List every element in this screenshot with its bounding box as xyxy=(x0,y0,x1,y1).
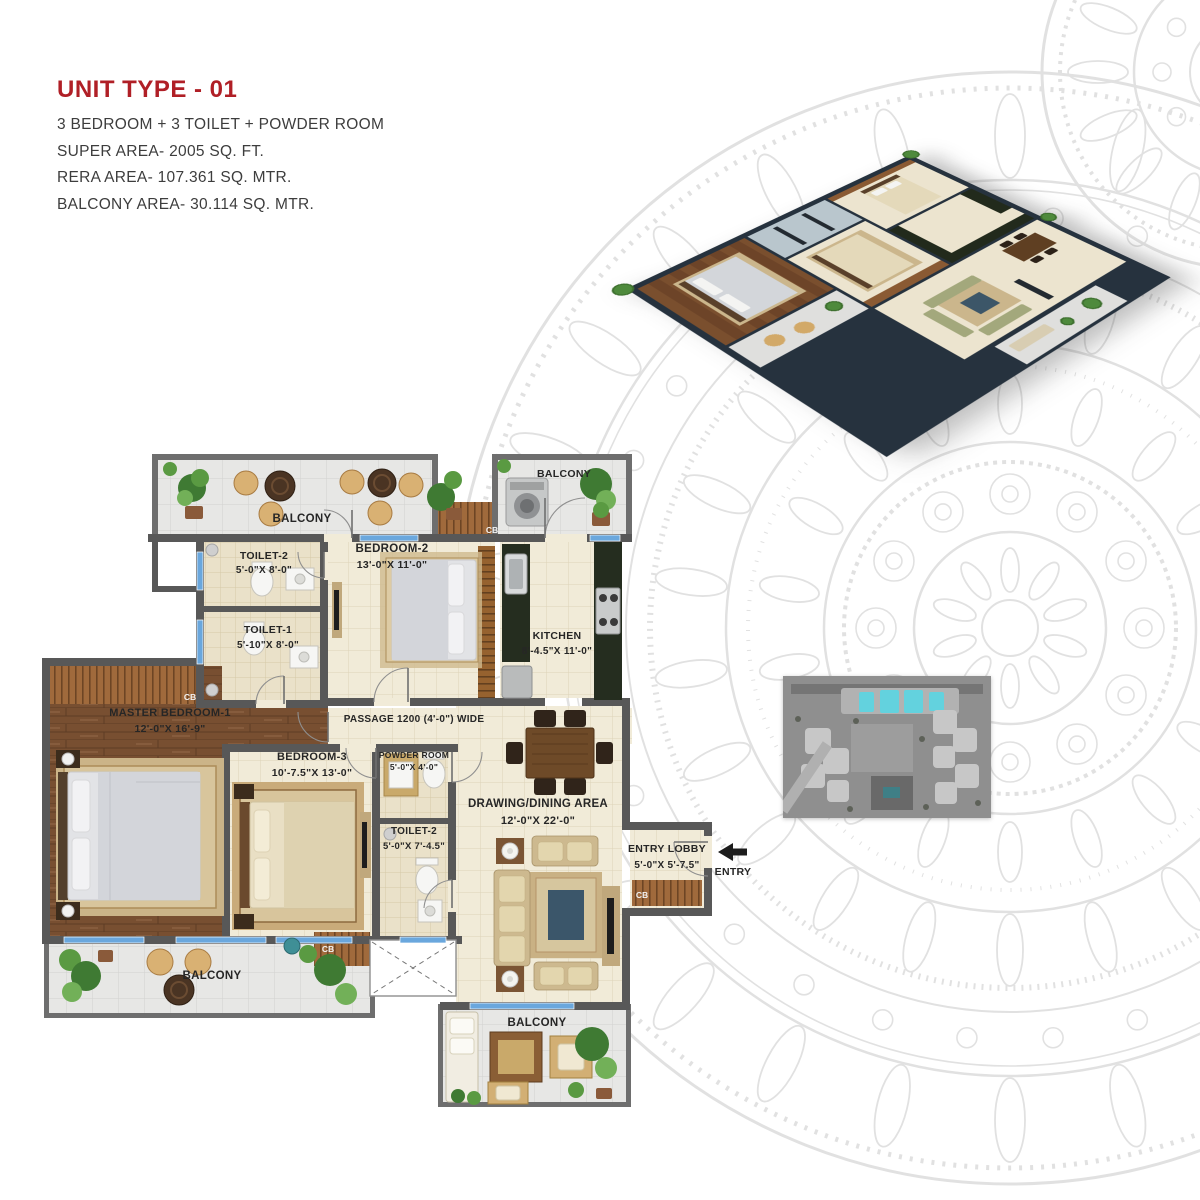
master-bed xyxy=(56,750,224,920)
floor-plan: BALCONY TOILET-2 5'-0"X 8'-0" BEDROOM-2 … xyxy=(40,452,760,1124)
label-passage: PASSAGE 1200 (4'-0") WIDE xyxy=(344,714,485,725)
shaft xyxy=(370,940,456,996)
unit-subtitle: 3 BEDROOM + 3 TOILET + POWDER ROOM xyxy=(57,112,384,139)
entry-arrow-icon xyxy=(718,843,747,861)
svg-text:10'-7.5"X 13'-0": 10'-7.5"X 13'-0" xyxy=(272,767,352,779)
site-pool xyxy=(883,787,900,798)
site-building xyxy=(935,782,957,804)
svg-text:12'-0"X 16'-9": 12'-0"X 16'-9" xyxy=(134,723,205,735)
balcony-area: BALCONY AREA- 30.114 SQ. MTR. xyxy=(57,192,384,219)
entry-label: ENTRY xyxy=(715,866,752,878)
super-area: SUPER AREA- 2005 SQ. FT. xyxy=(57,139,384,166)
shower-icon xyxy=(206,684,218,696)
svg-text:12'-0"X 22'-0": 12'-0"X 22'-0" xyxy=(501,815,575,827)
site-plaza xyxy=(851,724,913,772)
site-highlighted-tower xyxy=(880,690,899,713)
brochure-page: { "header": { "title": "UNIT TYPE - 01",… xyxy=(0,0,1200,1200)
rera-area: RERA AREA- 107.361 SQ. MTR. xyxy=(57,165,384,192)
svg-text:5'-0"X 7'-4.5": 5'-0"X 7'-4.5" xyxy=(383,841,445,852)
label-kitchen: KITCHEN xyxy=(533,630,582,642)
label-balcony-bc: BALCONY xyxy=(508,1017,567,1029)
label-cb-2: CB xyxy=(486,525,498,535)
site-highlighted-tower xyxy=(904,690,923,713)
site-building xyxy=(955,764,979,788)
svg-text:5'-0"X 4'-0": 5'-0"X 4'-0" xyxy=(390,762,438,772)
bedroom3-bed xyxy=(232,782,371,930)
label-toilet2-top: TOILET-2 xyxy=(240,550,288,562)
label-balcony-tr: BALCONY xyxy=(537,468,591,480)
unit-header: UNIT TYPE - 01 3 BEDROOM + 3 TOILET + PO… xyxy=(57,76,384,218)
iso-plan xyxy=(626,155,1171,457)
svg-text:8'-4.5"X 11'-0": 8'-4.5"X 11'-0" xyxy=(522,646,592,657)
label-balcony-bl: BALCONY xyxy=(183,970,242,982)
label-master: MASTER BEDROOM-1 xyxy=(109,707,231,719)
iso-plant xyxy=(899,149,924,161)
svg-text:5'-0"X 5'-7.5": 5'-0"X 5'-7.5" xyxy=(634,860,699,871)
site-highlighted-tower xyxy=(929,692,944,711)
label-cb-3: CB xyxy=(322,944,334,954)
label-cb-1: CB xyxy=(184,692,196,702)
site-building xyxy=(933,746,955,768)
label-cb-4: CB xyxy=(636,890,648,900)
svg-text:5'-0"X 8'-0": 5'-0"X 8'-0" xyxy=(236,565,292,576)
svg-text:5'-10"X 8'-0": 5'-10"X 8'-0" xyxy=(237,640,299,651)
entry-marker: ENTRY xyxy=(715,843,752,878)
label-entry-lobby: ENTRY LOBBY xyxy=(628,843,706,855)
shower-icon xyxy=(206,544,218,556)
label-powder: POWDER ROOM xyxy=(379,750,449,760)
site-highlighted-tower xyxy=(859,692,874,712)
label-bedroom3: BEDROOM-3 xyxy=(277,751,347,763)
label-bedroom2: BEDROOM-2 xyxy=(356,543,429,555)
page-title: UNIT TYPE - 01 xyxy=(57,76,384,104)
label-drawing-dining: DRAWING/DINING AREA xyxy=(468,798,608,810)
master-wardrobe-deck xyxy=(50,666,204,704)
svg-text:13'-0"X 11'-0": 13'-0"X 11'-0" xyxy=(357,559,428,571)
site-building xyxy=(953,728,977,752)
label-balcony-tl: BALCONY xyxy=(273,513,332,525)
site-plan-thumbnail xyxy=(783,676,991,818)
site-building xyxy=(827,780,849,802)
label-toilet2-lower: TOILET-2 xyxy=(391,826,437,837)
label-toilet1: TOILET-1 xyxy=(244,624,292,636)
fridge-icon xyxy=(502,666,532,698)
